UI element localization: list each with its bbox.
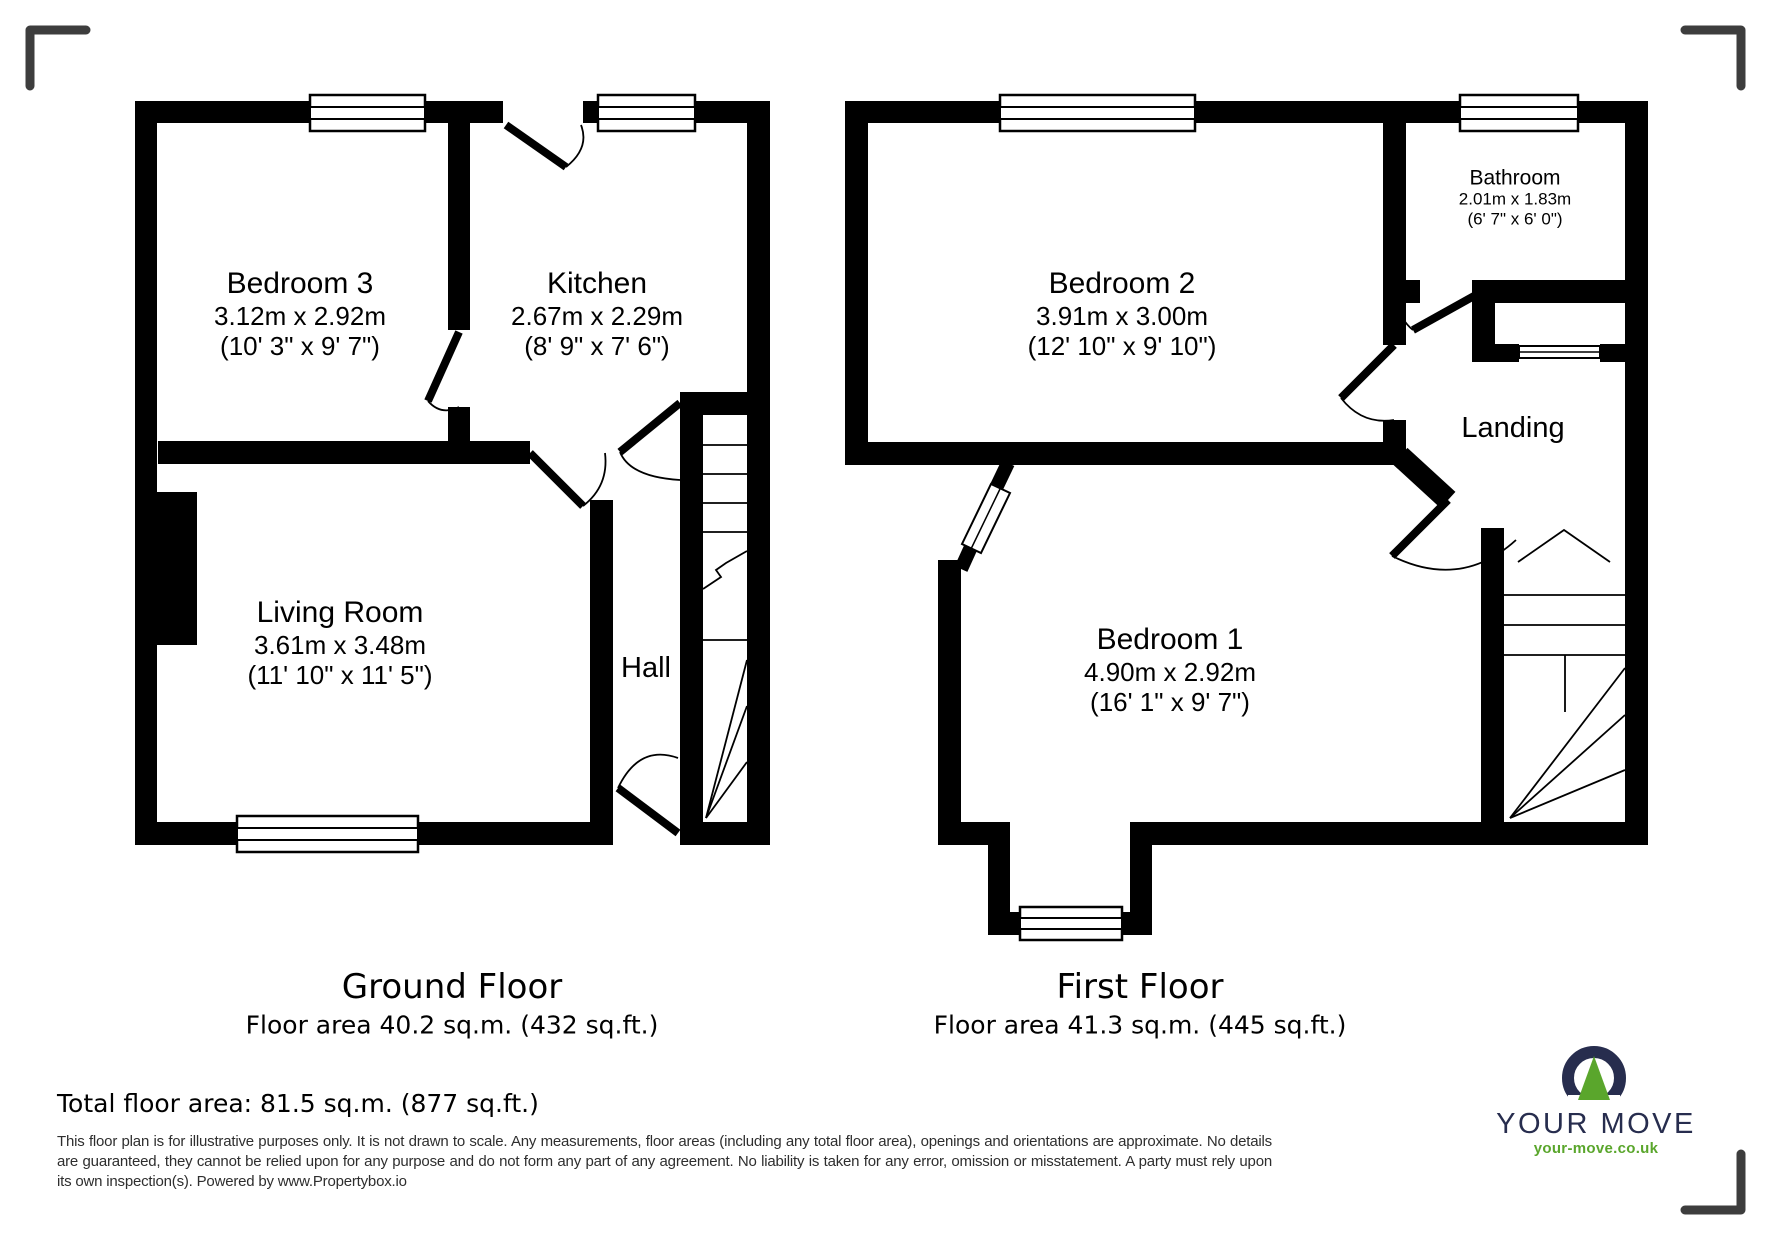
ground-living-room-label: Living Room 3.61m x 3.48m (11' 10" x 11'…: [248, 596, 433, 690]
room-dims-metric: 3.91m x 3.00m: [1028, 301, 1217, 331]
ground-floor-walls: [135, 101, 770, 845]
first-bathroom-label: Bathroom 2.01m x 1.83m (6' 7" x 6' 0"): [1459, 167, 1571, 230]
stair-direction-arrow: [1518, 530, 1610, 562]
logo-triangle: [1578, 1056, 1610, 1100]
room-name: Living Room: [248, 596, 433, 630]
brand-name: YOUR MOVE: [1496, 1108, 1696, 1140]
room-dims-imperial: (12' 10" x 9' 10"): [1028, 331, 1217, 361]
ground-floor-stairs: [703, 445, 747, 818]
door-kitchen: [620, 403, 680, 480]
room-dims-metric: 4.90m x 2.92m: [1084, 657, 1256, 687]
room-dims-imperial: (6' 7" x 6' 0"): [1459, 210, 1571, 230]
corner-mark-top-right: [1685, 30, 1741, 86]
room-dims-metric: 2.67m x 2.29m: [511, 301, 683, 331]
room-dims-imperial: (8' 9" x 7' 6"): [511, 331, 683, 361]
ground-floor-title: Ground Floor: [342, 968, 562, 1006]
your-move-logo-icon: [1568, 1052, 1620, 1115]
brand-website: your-move.co.uk: [1534, 1140, 1659, 1158]
room-name: Bathroom: [1459, 167, 1571, 190]
disclaimer-text: This floor plan is for illustrative purp…: [57, 1132, 1272, 1192]
first-bedroom1-label: Bedroom 1 4.90m x 2.92m (16' 1" x 9' 7"): [1084, 623, 1256, 717]
window-bathroom: [1460, 95, 1578, 131]
window-bedroom1-angled: [962, 484, 1010, 553]
first-floor-stairs: [1504, 530, 1625, 818]
ground-kitchen-label: Kitchen 2.67m x 2.29m (8' 9" x 7' 6"): [511, 267, 683, 361]
room-name: Bedroom 1: [1084, 623, 1256, 657]
room-dims-metric: 3.12m x 2.92m: [214, 301, 386, 331]
total-floor-area: Total floor area: 81.5 sq.m. (877 sq.ft.…: [57, 1089, 539, 1118]
ground-hall-label: Hall: [621, 652, 671, 684]
ground-floor-area: Floor area 40.2 sq.m. (432 sq.ft.): [246, 1011, 659, 1040]
window-living-room: [237, 816, 418, 852]
window-bay: [1020, 907, 1122, 940]
room-dims-metric: 3.61m x 3.48m: [248, 630, 433, 660]
room-name: Bedroom 3: [214, 267, 386, 301]
window-bedroom2: [1000, 95, 1195, 131]
stair-break-line: [703, 551, 747, 589]
first-landing-label: Landing: [1461, 412, 1564, 444]
first-floor-angled-walls: [961, 456, 1448, 569]
door-bedroom3: [428, 332, 459, 410]
corner-mark-bottom-right: [1685, 1154, 1741, 1210]
floorplan-canvas: Bedroom 3 3.12m x 2.92m (10' 3" x 9' 7")…: [0, 0, 1771, 1239]
first-floor-area: Floor area 41.3 sq.m. (445 sq.ft.): [934, 1011, 1347, 1040]
window-landing-side: [1519, 346, 1600, 358]
window-bedroom3: [310, 95, 425, 131]
room-name: Kitchen: [511, 267, 683, 301]
first-floor-title: First Floor: [1057, 968, 1224, 1006]
room-dims-metric: 2.01m x 1.83m: [1459, 190, 1571, 210]
room-name: Bedroom 2: [1028, 267, 1217, 301]
door-living-room: [530, 453, 606, 506]
door-back: [506, 125, 583, 167]
chimney-breast: [157, 492, 197, 645]
room-dims-imperial: (11' 10" x 11' 5"): [248, 660, 433, 690]
corner-mark-top-left: [30, 30, 86, 86]
door-bedroom2: [1341, 345, 1394, 421]
window-kitchen: [598, 95, 695, 131]
ground-bedroom3-label: Bedroom 3 3.12m x 2.92m (10' 3" x 9' 7"): [214, 267, 386, 361]
room-dims-imperial: (10' 3" x 9' 7"): [214, 331, 386, 361]
first-bedroom2-label: Bedroom 2 3.91m x 3.00m (12' 10" x 9' 10…: [1028, 267, 1217, 361]
room-dims-imperial: (16' 1" x 9' 7"): [1084, 687, 1256, 717]
landing-angled-wall: [1400, 456, 1448, 500]
